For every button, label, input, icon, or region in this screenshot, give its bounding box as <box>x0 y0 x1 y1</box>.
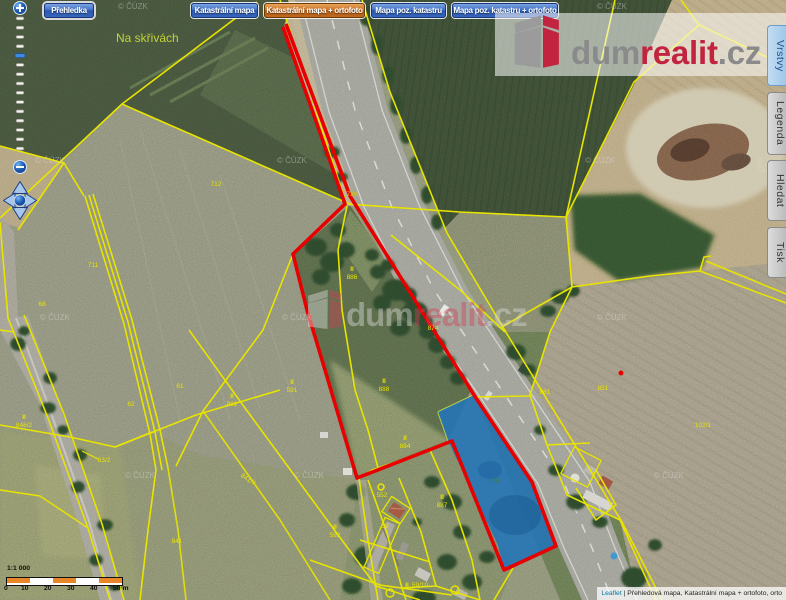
svg-text:878: 878 <box>489 478 500 485</box>
svg-text:68: 68 <box>38 301 46 308</box>
svg-text:711: 711 <box>88 262 99 269</box>
svg-text:II: II <box>405 582 409 589</box>
svg-text:888: 888 <box>379 386 390 393</box>
svg-text:591: 591 <box>287 387 298 394</box>
svg-text:61: 61 <box>176 383 184 390</box>
svg-text:II: II <box>333 524 337 531</box>
svg-text:892: 892 <box>227 401 238 408</box>
svg-text:II: II <box>350 266 354 273</box>
svg-text:dumrealit.cz: dumrealit.cz <box>346 296 527 333</box>
svg-text:861: 861 <box>540 389 551 396</box>
svg-text:II: II <box>440 494 444 501</box>
svg-text:846/2: 846/2 <box>16 422 33 429</box>
svg-text:II: II <box>230 393 234 400</box>
svg-text:712: 712 <box>211 181 222 188</box>
svg-text:dumrealit.cz: dumrealit.cz <box>571 34 761 71</box>
svg-text:592: 592 <box>330 532 341 539</box>
svg-text:63/2: 63/2 <box>98 457 111 464</box>
svg-text:II: II <box>290 379 294 386</box>
svg-text:887: 887 <box>437 502 448 509</box>
svg-text:841: 841 <box>172 538 183 545</box>
svg-text:II: II <box>403 435 407 442</box>
svg-text:II: II <box>22 414 26 421</box>
svg-text:726: 726 <box>347 191 358 198</box>
svg-text:851: 851 <box>598 385 609 392</box>
svg-text:552: 552 <box>377 492 388 499</box>
svg-text:886: 886 <box>347 274 358 281</box>
svg-text:II: II <box>382 378 386 385</box>
svg-text:59/10: 59/10 <box>412 582 429 589</box>
svg-text:62: 62 <box>127 401 135 408</box>
svg-text:884: 884 <box>400 443 411 450</box>
svg-text:102/1: 102/1 <box>695 422 712 429</box>
svg-text:59: 59 <box>381 523 389 530</box>
